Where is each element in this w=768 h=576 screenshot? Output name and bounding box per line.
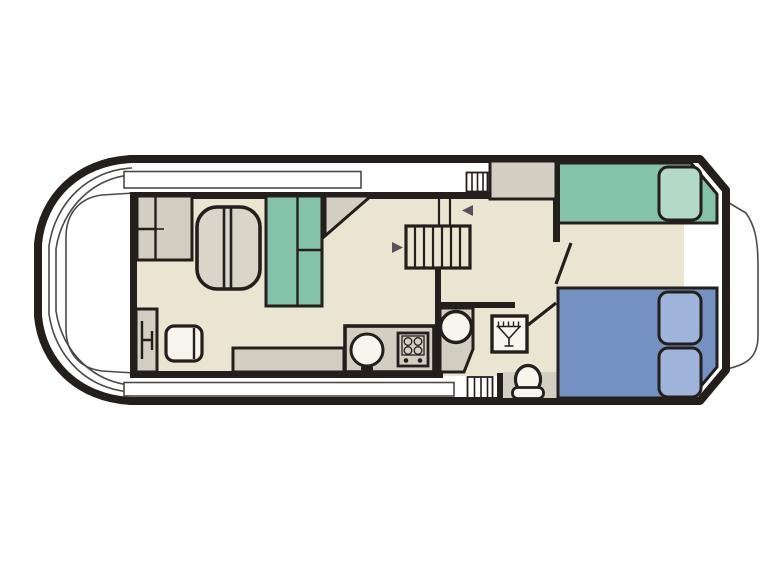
floorplan-canvas: [0, 0, 768, 576]
wardrobe: [266, 196, 322, 306]
washbasin: [441, 312, 472, 343]
wall-toilet-left: [497, 373, 503, 401]
sink-faucet: [361, 367, 373, 371]
aft-cabin-step-area: [684, 223, 718, 288]
double-berth-pillow-2: [659, 348, 701, 397]
galley-worktop: [345, 326, 434, 372]
shower-tray: [492, 316, 527, 352]
bottom-walkway: [124, 383, 454, 397]
helm-console: [136, 309, 157, 372]
single-berth-pillow: [659, 167, 701, 220]
bench-seat: [233, 348, 344, 372]
storage-cabinet: [137, 196, 192, 260]
galley-sink: [351, 334, 383, 366]
stool-seat: [166, 326, 202, 361]
side-entry-landing: [490, 161, 556, 199]
top-walkway: [124, 172, 361, 189]
dinette-table: [197, 207, 260, 289]
boat-floorplan: [0, 0, 768, 576]
aft-cabin-floor: [558, 220, 684, 290]
double-berth-pillow-1: [659, 292, 701, 344]
toilet-base: [513, 388, 544, 399]
